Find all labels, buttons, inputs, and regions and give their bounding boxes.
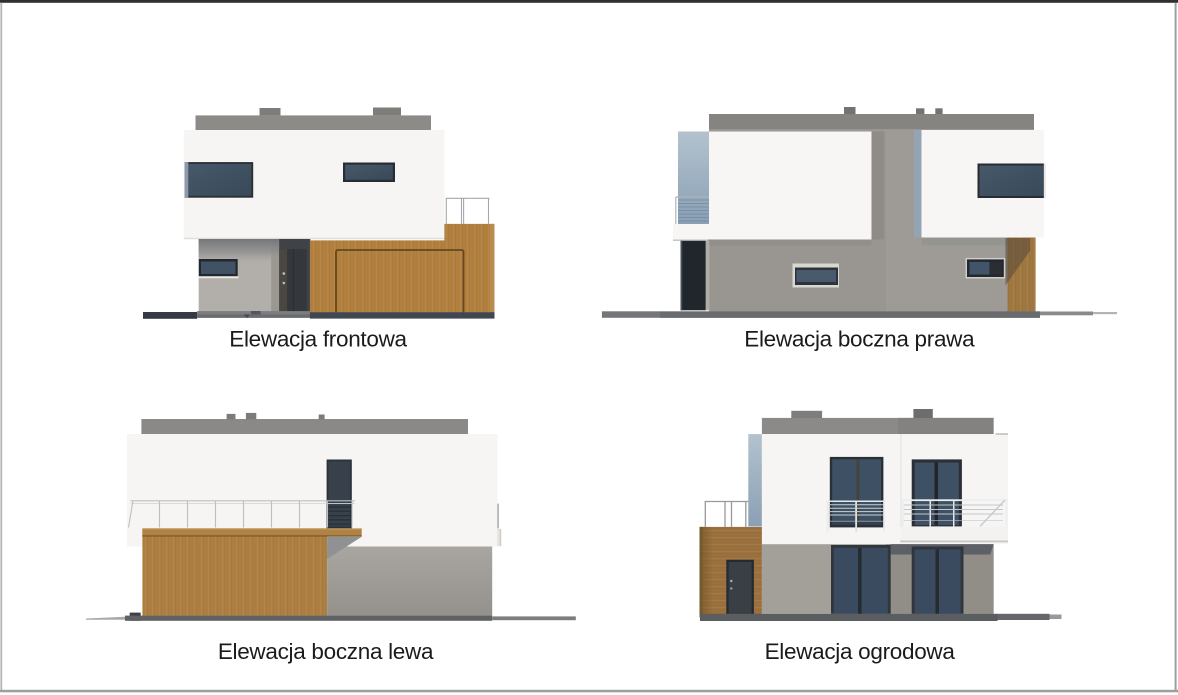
svg-text:Elewacja boczna lewa: Elewacja boczna lewa: [218, 639, 434, 664]
svg-text:Elewacja boczna prawa: Elewacja boczna prawa: [744, 327, 975, 352]
svg-text:Elewacja ogrodowa: Elewacja ogrodowa: [765, 639, 956, 664]
svg-text:Elewacja frontowa: Elewacja frontowa: [229, 327, 407, 352]
